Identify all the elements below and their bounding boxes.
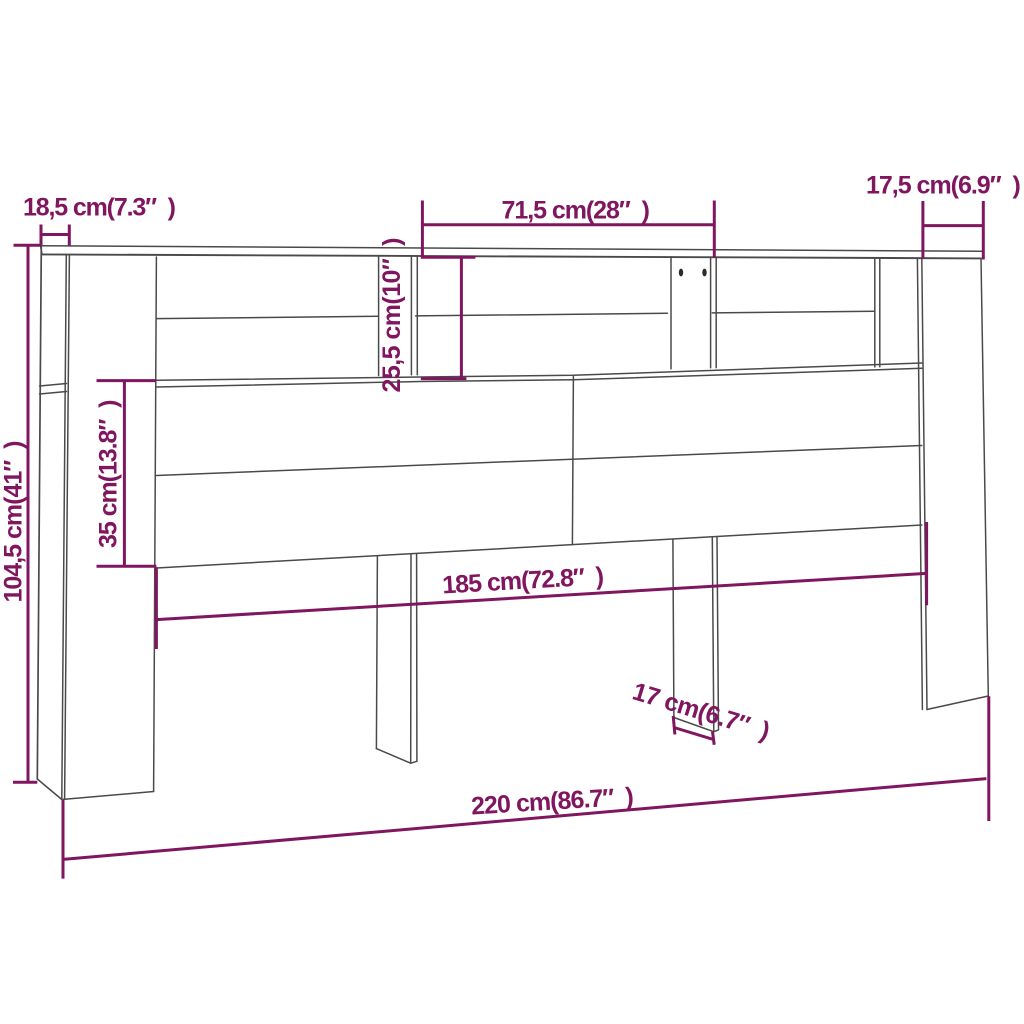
svg-text:104,5 cm(41″ ): 104,5 cm(41″ )	[0, 441, 28, 603]
svg-text:71,5 cm(28″ ): 71,5 cm(28″ )	[502, 196, 650, 224]
svg-text:18,5 cm(7.3″ ): 18,5 cm(7.3″ )	[23, 193, 176, 221]
svg-text:17,5 cm(6.9″ ): 17,5 cm(6.9″ )	[866, 172, 1021, 200]
svg-text:25,5 cm(10″ ): 25,5 cm(10″ )	[378, 238, 406, 393]
svg-text:35 cm(13.8″ ): 35 cm(13.8″ )	[95, 400, 123, 548]
